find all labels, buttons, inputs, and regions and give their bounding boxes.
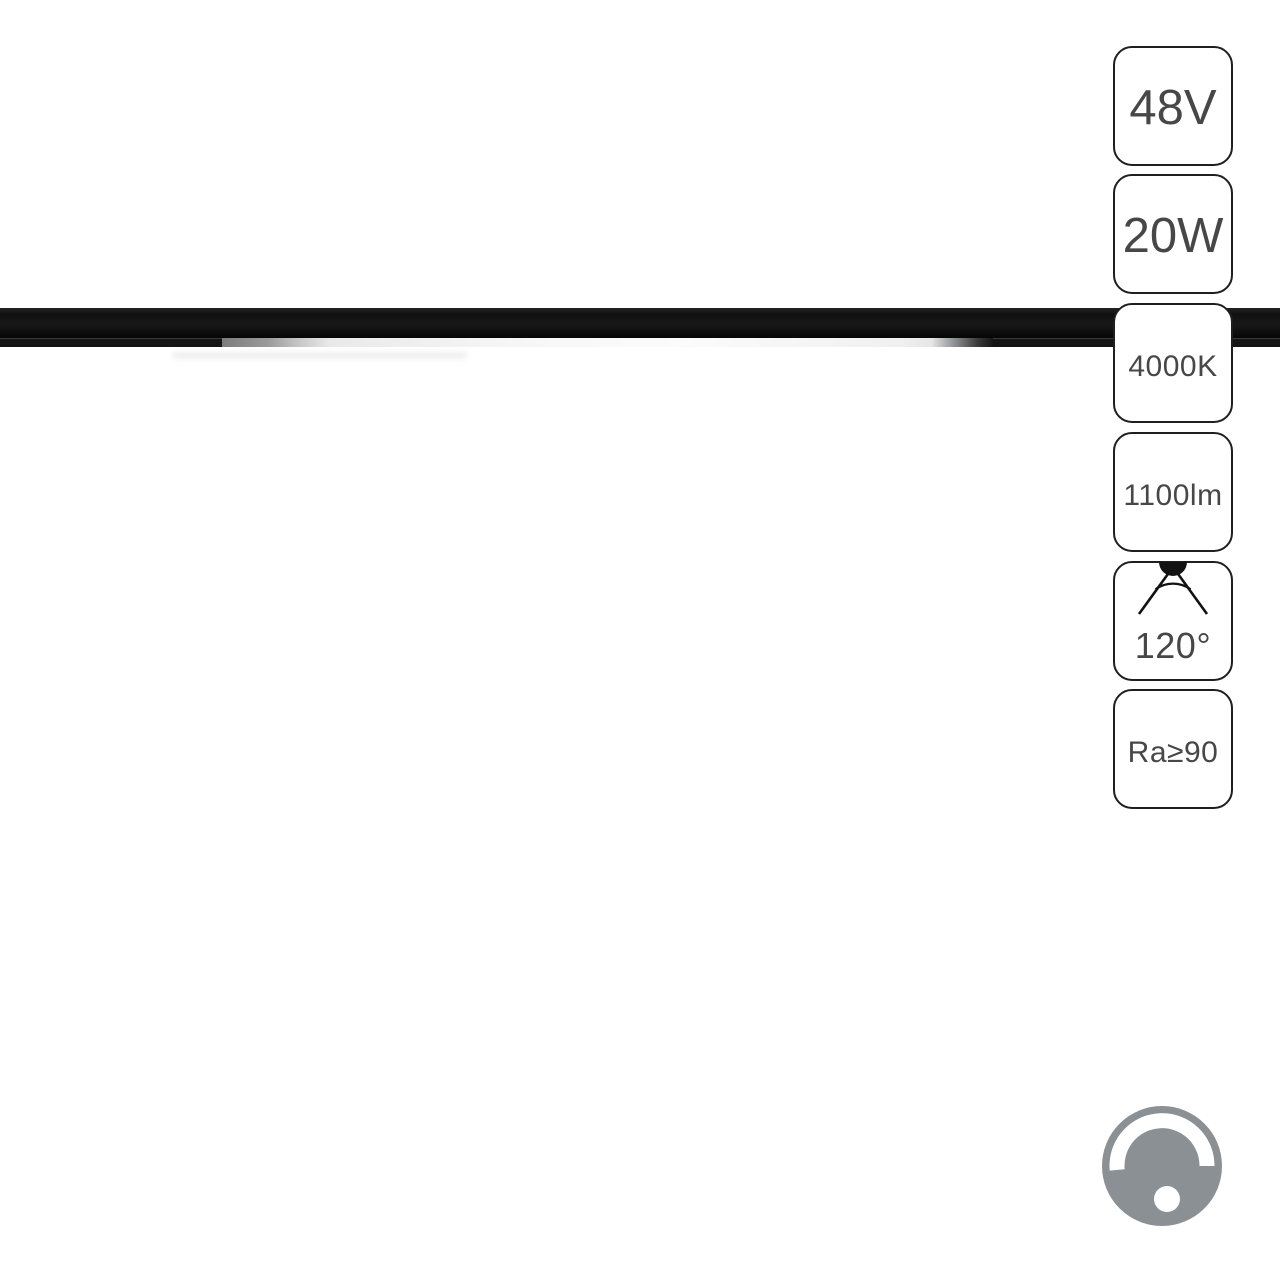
badge-beam-angle: 120° [1113, 561, 1233, 681]
badge-luminous-flux: 1100lm [1113, 432, 1233, 552]
dimmer-knob-icon [1100, 1104, 1224, 1228]
beam-angle-icon [1123, 562, 1223, 624]
color-temperature-label: 4000K [1128, 350, 1217, 384]
badge-voltage: 48V [1113, 46, 1233, 166]
beam-angle-label: 120° [1135, 625, 1211, 667]
wattage-label: 20W [1123, 208, 1224, 264]
track-rail [0, 308, 1280, 338]
badge-cri: Ra≥90 [1113, 689, 1233, 809]
product-spec-image: 48V 20W 4000K 1100lm 120° Ra≥90 [0, 0, 1280, 1280]
luminous-flux-label: 1100lm [1123, 479, 1222, 513]
led-light-strip [222, 338, 993, 347]
badge-color-temperature: 4000K [1113, 303, 1233, 423]
light-glow-shadow [172, 353, 467, 358]
cri-label: Ra≥90 [1128, 736, 1219, 770]
badge-wattage: 20W [1113, 174, 1233, 294]
voltage-label: 48V [1129, 80, 1216, 136]
